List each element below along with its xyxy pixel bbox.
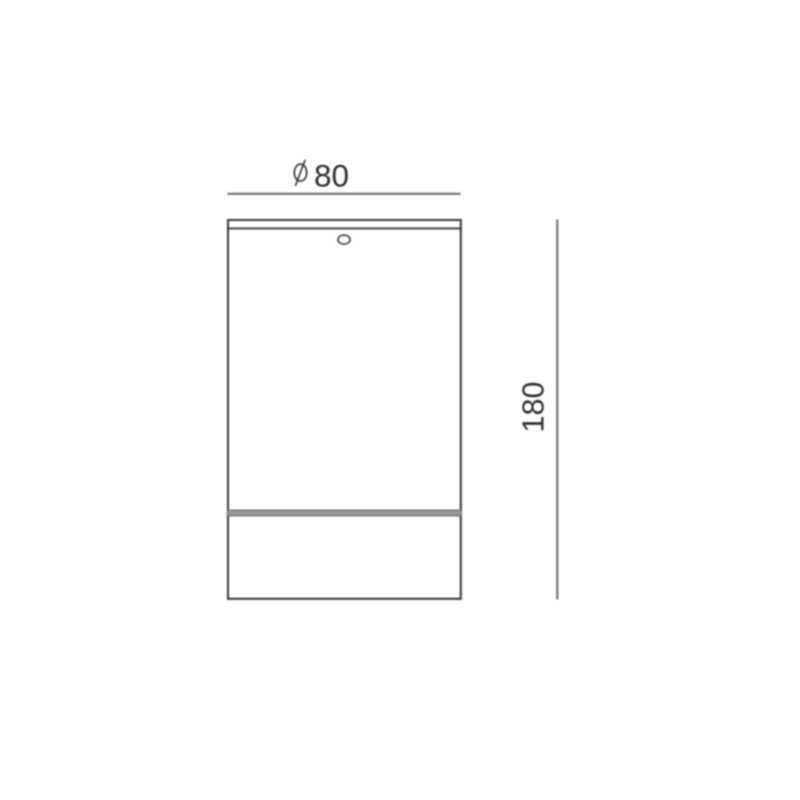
svg-text:80: 80 — [314, 158, 349, 194]
svg-text:180: 180 — [516, 382, 550, 433]
